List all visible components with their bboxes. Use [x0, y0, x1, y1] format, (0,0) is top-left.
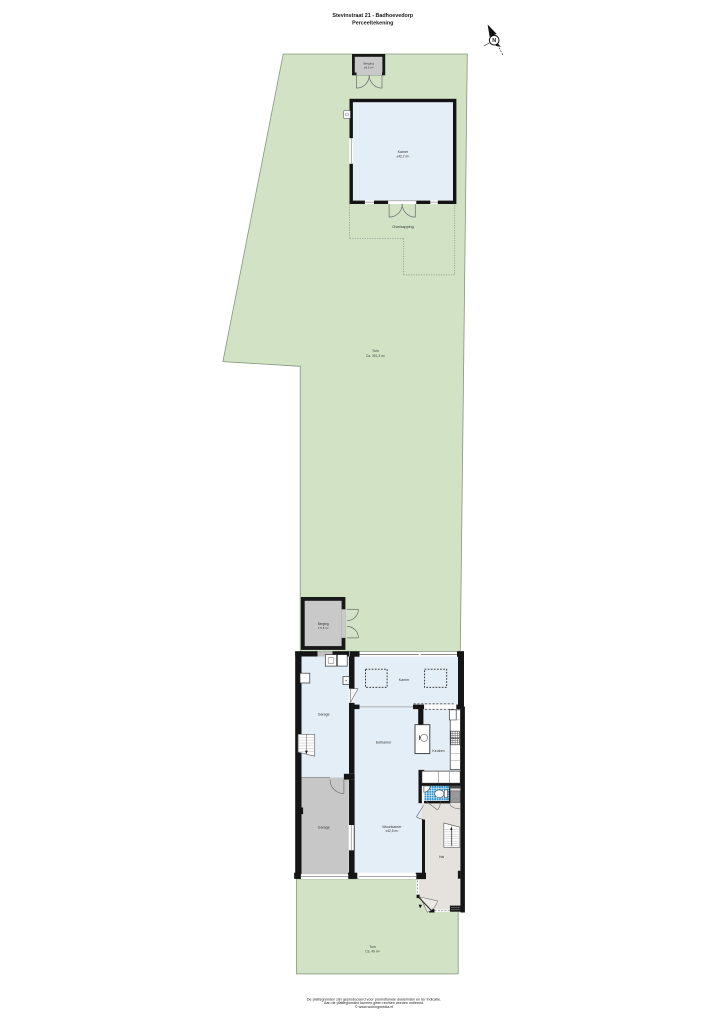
svg-text:±42,5 m²: ±42,5 m²: [385, 829, 399, 833]
svg-text:Stevinstraat 21 - Badhoevedorp: Stevinstraat 21 - Badhoevedorp: [332, 13, 414, 19]
svg-text:±42,7 m²: ±42,7 m²: [396, 154, 410, 158]
svg-text:Keuken: Keuken: [432, 749, 444, 753]
svg-text:Kamer: Kamer: [399, 678, 410, 682]
svg-text:Eetkamer: Eetkamer: [376, 740, 392, 744]
svg-text:Hal: Hal: [439, 855, 444, 859]
svg-text:Garage: Garage: [318, 712, 330, 716]
svg-text:Ca. 391,3 m²: Ca. 391,3 m²: [366, 354, 386, 358]
svg-text:N: N: [492, 38, 496, 44]
svg-text:© www.woningmedia.nl: © www.woningmedia.nl: [355, 1005, 393, 1009]
svg-text:± 5,5 m²: ± 5,5 m²: [318, 626, 329, 630]
svg-text:Tuin: Tuin: [369, 945, 376, 949]
svg-text:±4,5 m²: ±4,5 m²: [364, 65, 374, 69]
svg-text:Perceeltekening: Perceeltekening: [352, 20, 393, 26]
svg-text:Ca. 49 m²: Ca. 49 m²: [365, 949, 380, 953]
svg-text:Garage: Garage: [318, 826, 330, 830]
svg-text:Tuin: Tuin: [372, 349, 379, 353]
svg-text:Overkapping: Overkapping: [392, 225, 414, 229]
